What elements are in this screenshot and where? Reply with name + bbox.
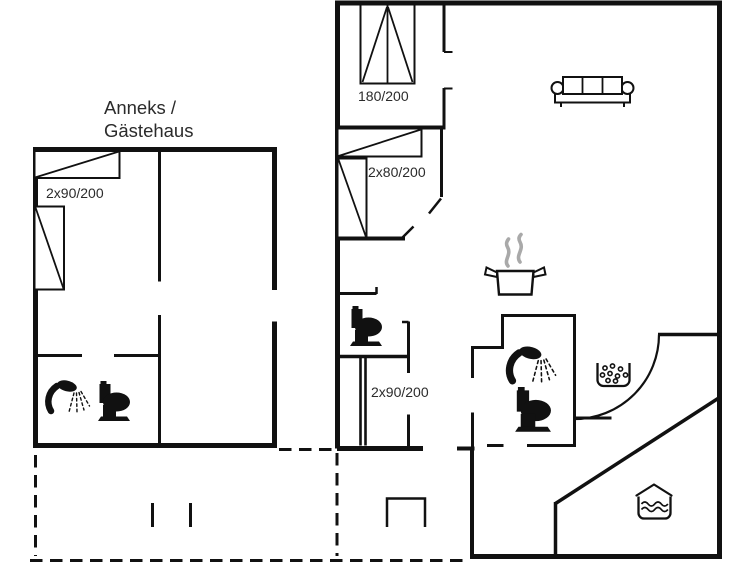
double-bed-180 bbox=[361, 5, 415, 84]
annex-title-line1: Anneks / bbox=[104, 97, 177, 118]
floor-plan-svg: Anneks / Gästehaus 2x90/200 bbox=[0, 0, 755, 566]
bunk-bed-horizontal bbox=[338, 129, 422, 157]
annex-bed-label: 2x90/200 bbox=[46, 185, 104, 201]
floor-plan-canvas: Anneks / Gästehaus 2x90/200 bbox=[0, 0, 755, 566]
annex-bed-horizontal bbox=[35, 151, 120, 178]
sofa-icon bbox=[552, 77, 634, 107]
double-bed-label: 180/200 bbox=[358, 88, 409, 104]
hall-bunk-bed-label: 2x90/200 bbox=[371, 384, 429, 400]
background bbox=[0, 0, 755, 566]
single-bed-vertical bbox=[338, 159, 367, 238]
annex-title-line2: Gästehaus bbox=[104, 120, 193, 141]
annex-bed-vertical bbox=[35, 207, 65, 290]
bunk-bed-label: 2x80/200 bbox=[368, 164, 426, 180]
